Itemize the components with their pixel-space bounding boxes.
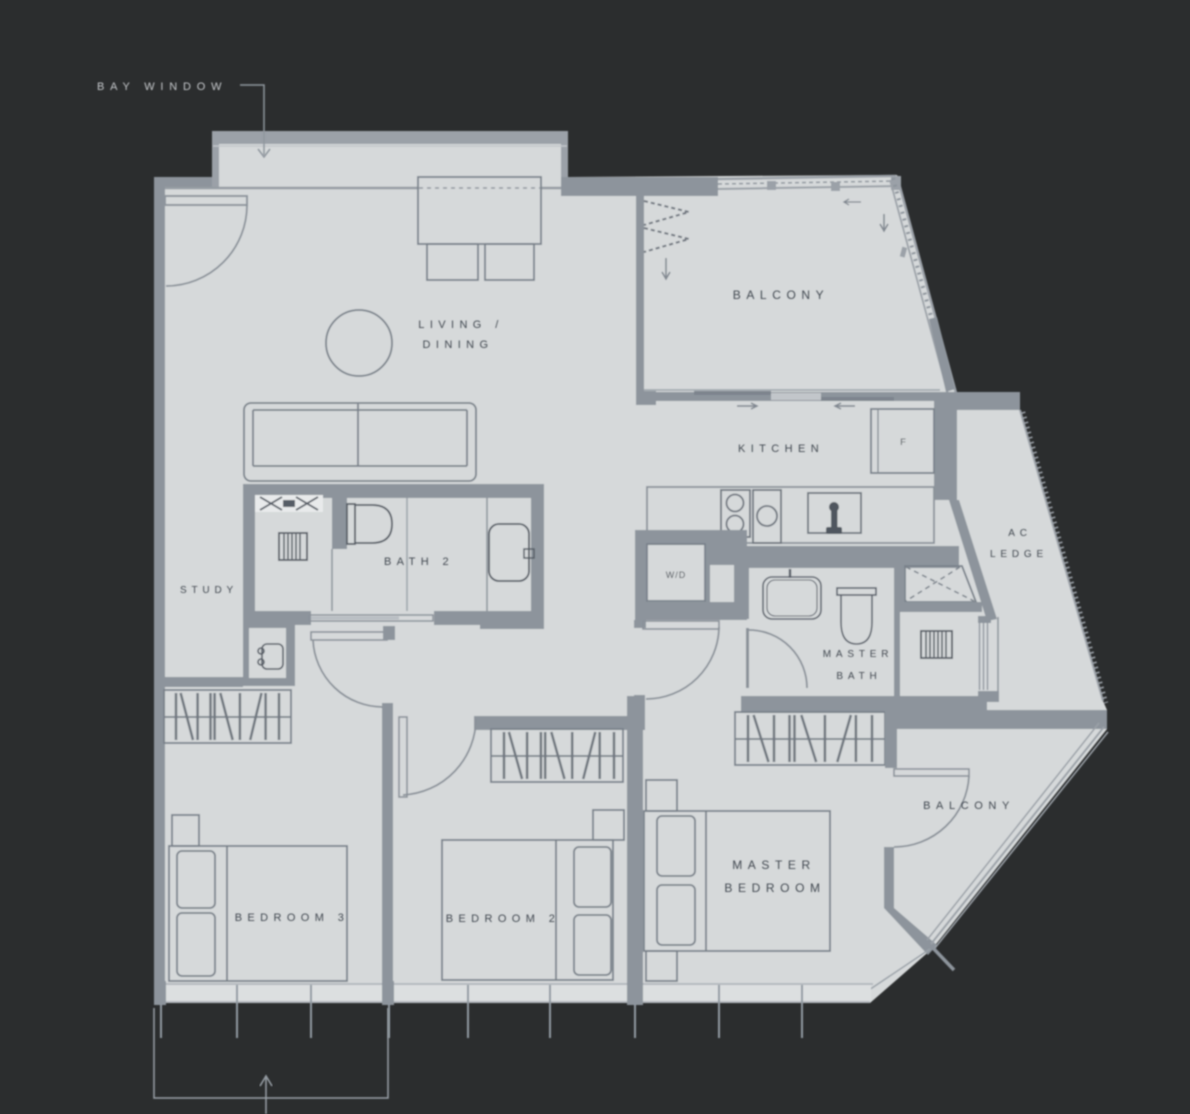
svg-text:BEDROOM 3: BEDROOM 3 bbox=[235, 912, 350, 924]
svg-text:BATH: BATH bbox=[836, 671, 881, 682]
svg-text:LIVING /: LIVING / bbox=[418, 319, 503, 331]
svg-text:BALCONY: BALCONY bbox=[923, 800, 1015, 812]
svg-text:KITCHEN: KITCHEN bbox=[738, 443, 824, 455]
svg-text:AC: AC bbox=[1008, 528, 1032, 539]
svg-text:BAY WINDOW: BAY WINDOW bbox=[97, 81, 227, 93]
svg-text:BATH 2: BATH 2 bbox=[384, 556, 454, 568]
svg-text:W/D: W/D bbox=[666, 570, 687, 580]
svg-text:DINING: DINING bbox=[423, 339, 494, 351]
svg-text:LEDGE: LEDGE bbox=[990, 549, 1048, 560]
svg-text:MASTER: MASTER bbox=[823, 649, 893, 660]
svg-text:STUDY: STUDY bbox=[180, 585, 238, 596]
svg-text:BALCONY: BALCONY bbox=[733, 288, 830, 302]
svg-text:F: F bbox=[900, 437, 906, 448]
svg-text:BEDROOM 2: BEDROOM 2 bbox=[446, 913, 561, 925]
svg-text:BEDROOM: BEDROOM bbox=[724, 881, 825, 895]
svg-text:MASTER: MASTER bbox=[732, 858, 816, 872]
